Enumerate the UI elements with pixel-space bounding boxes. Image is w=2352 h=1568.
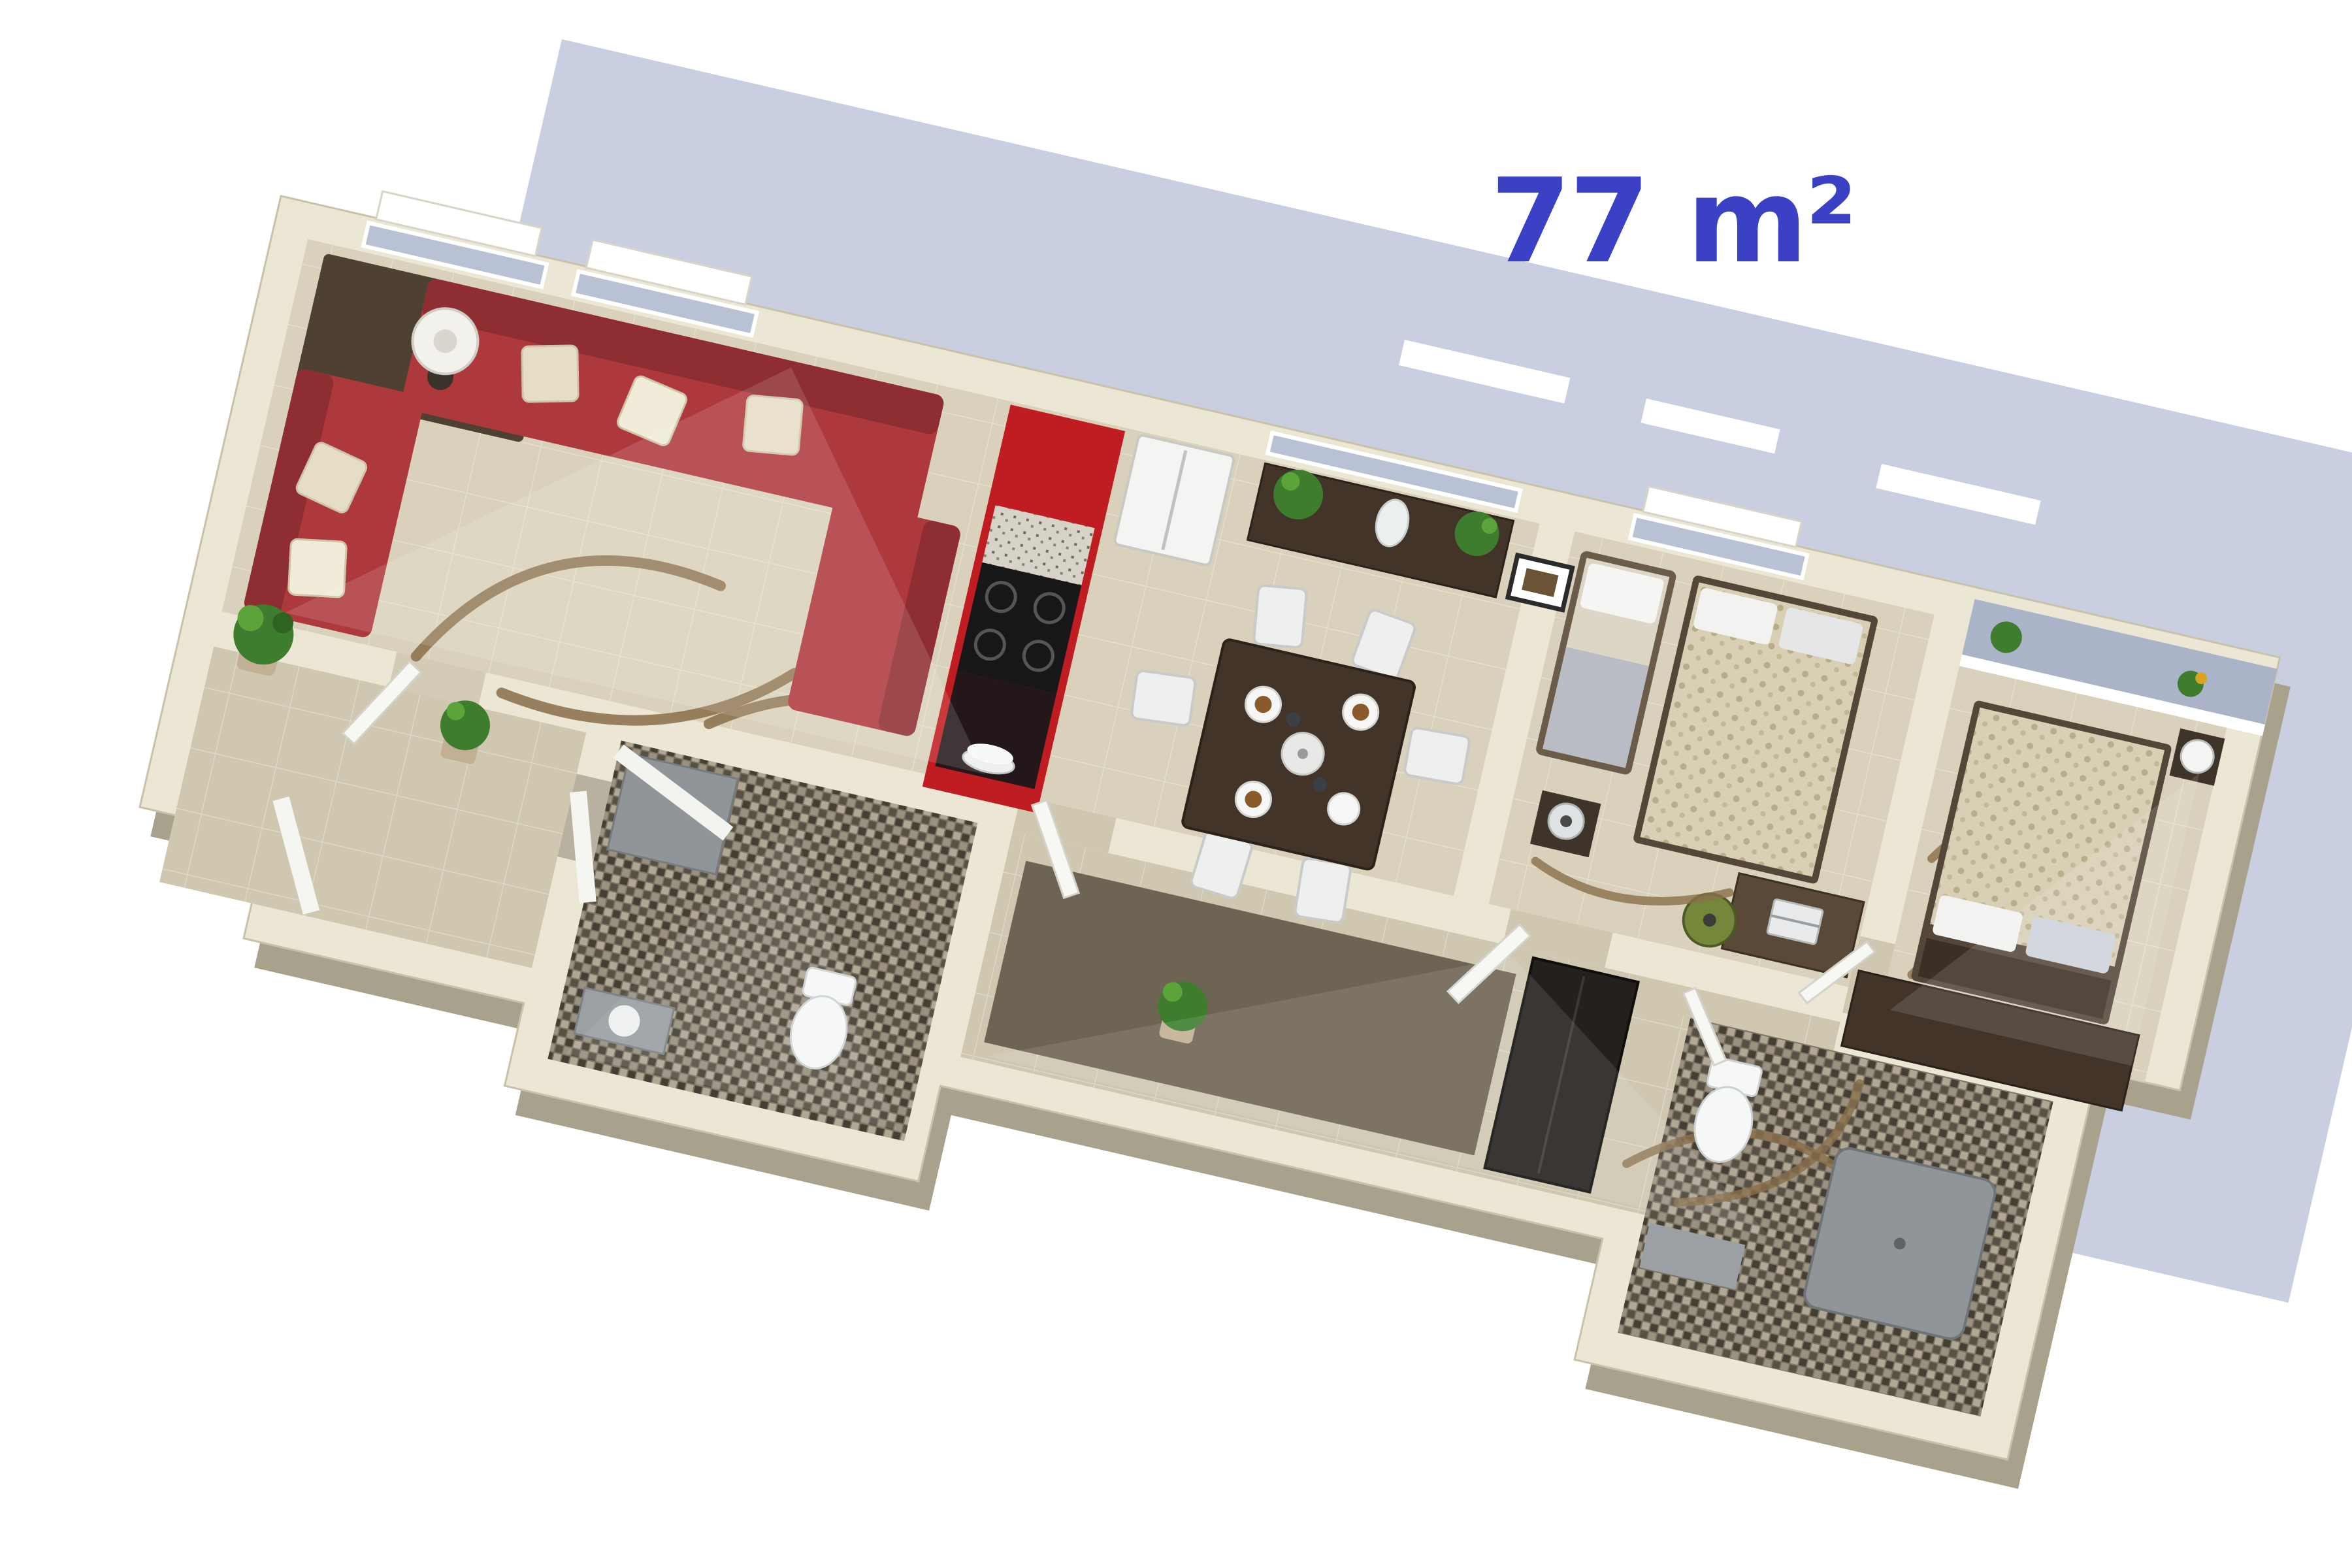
floor-plan-svg: 77 m² <box>0 0 2352 1568</box>
floor-plan-image: 77 m² <box>0 0 2352 1568</box>
area-label: 77 m² <box>1490 154 1855 289</box>
